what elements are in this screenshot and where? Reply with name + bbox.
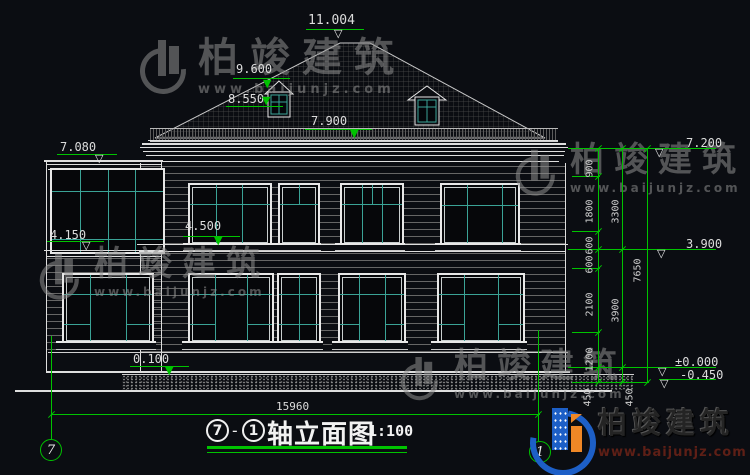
dim-label: 3300 bbox=[611, 190, 622, 234]
watermark-brand: 柏竣建筑 bbox=[198, 36, 406, 80]
window bbox=[437, 273, 525, 345]
level-dormer-top: 9.600 bbox=[236, 62, 272, 76]
level-line bbox=[305, 129, 372, 130]
window bbox=[338, 273, 406, 345]
cornice-line bbox=[140, 147, 568, 148]
dim-label: 900 bbox=[585, 147, 596, 191]
cad-elevation-canvas: 柏竣建筑 www.baijunjz.com 柏竣建筑 www.baijunjz.… bbox=[0, 0, 750, 475]
cornice-line bbox=[149, 161, 559, 162]
title-axis-start-circle: 7 bbox=[206, 419, 229, 442]
watermark-logo-icon bbox=[401, 354, 441, 400]
cornice-line bbox=[142, 143, 566, 145]
window bbox=[340, 183, 404, 247]
level-triangle-icon: ▽ bbox=[658, 366, 666, 377]
level-triangle-icon: ▼ bbox=[262, 95, 270, 106]
brand-logo-icon bbox=[530, 400, 594, 474]
drawing-scale: 1:100 bbox=[368, 422, 413, 440]
axis-number: 7 bbox=[47, 443, 55, 458]
cornice-line bbox=[143, 151, 565, 152]
window-sill bbox=[56, 341, 156, 350]
level-line bbox=[183, 236, 240, 237]
level-triangle-icon: ▽ bbox=[657, 248, 665, 259]
watermark-brand: 柏竣建筑 bbox=[94, 246, 270, 283]
window bbox=[278, 183, 320, 247]
watermark-logo-icon bbox=[140, 36, 190, 94]
dim-label: 2100 bbox=[585, 283, 596, 327]
level-triangle-icon: ▽ bbox=[95, 153, 103, 164]
level-plinth: 0.100 bbox=[133, 352, 169, 366]
level-triangle-icon: ▼ bbox=[165, 365, 173, 376]
window bbox=[440, 183, 520, 247]
window bbox=[277, 273, 321, 345]
level-eave: 7.900 bbox=[311, 114, 347, 128]
brand-site: www.baijunjz.com bbox=[598, 445, 747, 460]
title-underline-thick bbox=[207, 446, 407, 449]
title-separator: - bbox=[230, 421, 240, 440]
window-sill bbox=[271, 341, 323, 350]
dim-label-total-width: 15960 bbox=[276, 400, 309, 413]
annex-roof-band bbox=[44, 160, 163, 162]
level-line bbox=[130, 366, 189, 367]
dim-tick bbox=[644, 379, 651, 386]
title-underline-thin bbox=[207, 452, 407, 453]
level-floor2-sill: 4.500 bbox=[185, 219, 221, 233]
title-axis-start: 7 bbox=[213, 423, 223, 439]
level-line bbox=[47, 241, 104, 242]
axis-bubble-left: 7 bbox=[40, 439, 62, 461]
level-ridge: 11.004 bbox=[308, 13, 355, 28]
watermark: 柏竣建筑 www.baijunjz.com bbox=[140, 36, 406, 97]
watermark: 柏竣建筑 www.baijunjz.com bbox=[36, 246, 270, 304]
level-triangle-icon: ▽ bbox=[655, 147, 663, 158]
annex-roof-band bbox=[46, 164, 161, 165]
dim-chain-line bbox=[622, 148, 623, 382]
window-sill bbox=[182, 341, 276, 350]
level-annex-sill: 4.150 bbox=[50, 228, 86, 242]
title-axis-end: 1 bbox=[249, 423, 259, 439]
watermark: 柏竣建筑 www.baijunjz.com bbox=[512, 142, 746, 200]
level-triangle-icon: ▼ bbox=[263, 78, 271, 89]
level-dormer-sill: 8.550 bbox=[228, 92, 264, 106]
title-axis-end-circle: 1 bbox=[242, 419, 265, 442]
brand-name: 柏竣建筑 bbox=[598, 400, 747, 442]
level-line bbox=[226, 106, 283, 107]
level-annex-roof: 7.080 bbox=[60, 140, 96, 154]
watermark-logo-icon bbox=[40, 250, 83, 299]
window-sill bbox=[273, 243, 321, 251]
window-sill bbox=[435, 243, 521, 251]
level-triangle-icon: ▼ bbox=[350, 128, 358, 139]
watermark-site: www.baijunjz.com bbox=[94, 285, 270, 299]
cornice-line bbox=[148, 140, 558, 141]
dim-label: 3900 bbox=[611, 289, 622, 333]
dim-label-total-height: 7650 bbox=[633, 249, 644, 293]
level-line bbox=[233, 78, 290, 79]
dim-chain-line bbox=[647, 148, 648, 382]
watermark-site: www.baijunjz.com bbox=[570, 181, 746, 195]
watermark-logo-icon bbox=[516, 146, 559, 195]
level-triangle-icon: ▽ bbox=[660, 378, 668, 389]
brand-logo: 柏竣建筑 www.baijunjz.com bbox=[530, 400, 747, 474]
axis-line-left bbox=[51, 336, 52, 439]
level-line bbox=[57, 154, 117, 155]
window bbox=[188, 183, 272, 247]
cornice-line bbox=[146, 155, 564, 156]
level-triangle-icon: ▽ bbox=[334, 28, 342, 39]
dim-label: 600 bbox=[585, 243, 596, 287]
level-triangle-icon: ▼ bbox=[214, 235, 222, 246]
window-sill bbox=[335, 243, 405, 251]
dim-chain-line bbox=[598, 148, 599, 382]
level-triangle-icon: ▽ bbox=[82, 240, 90, 251]
